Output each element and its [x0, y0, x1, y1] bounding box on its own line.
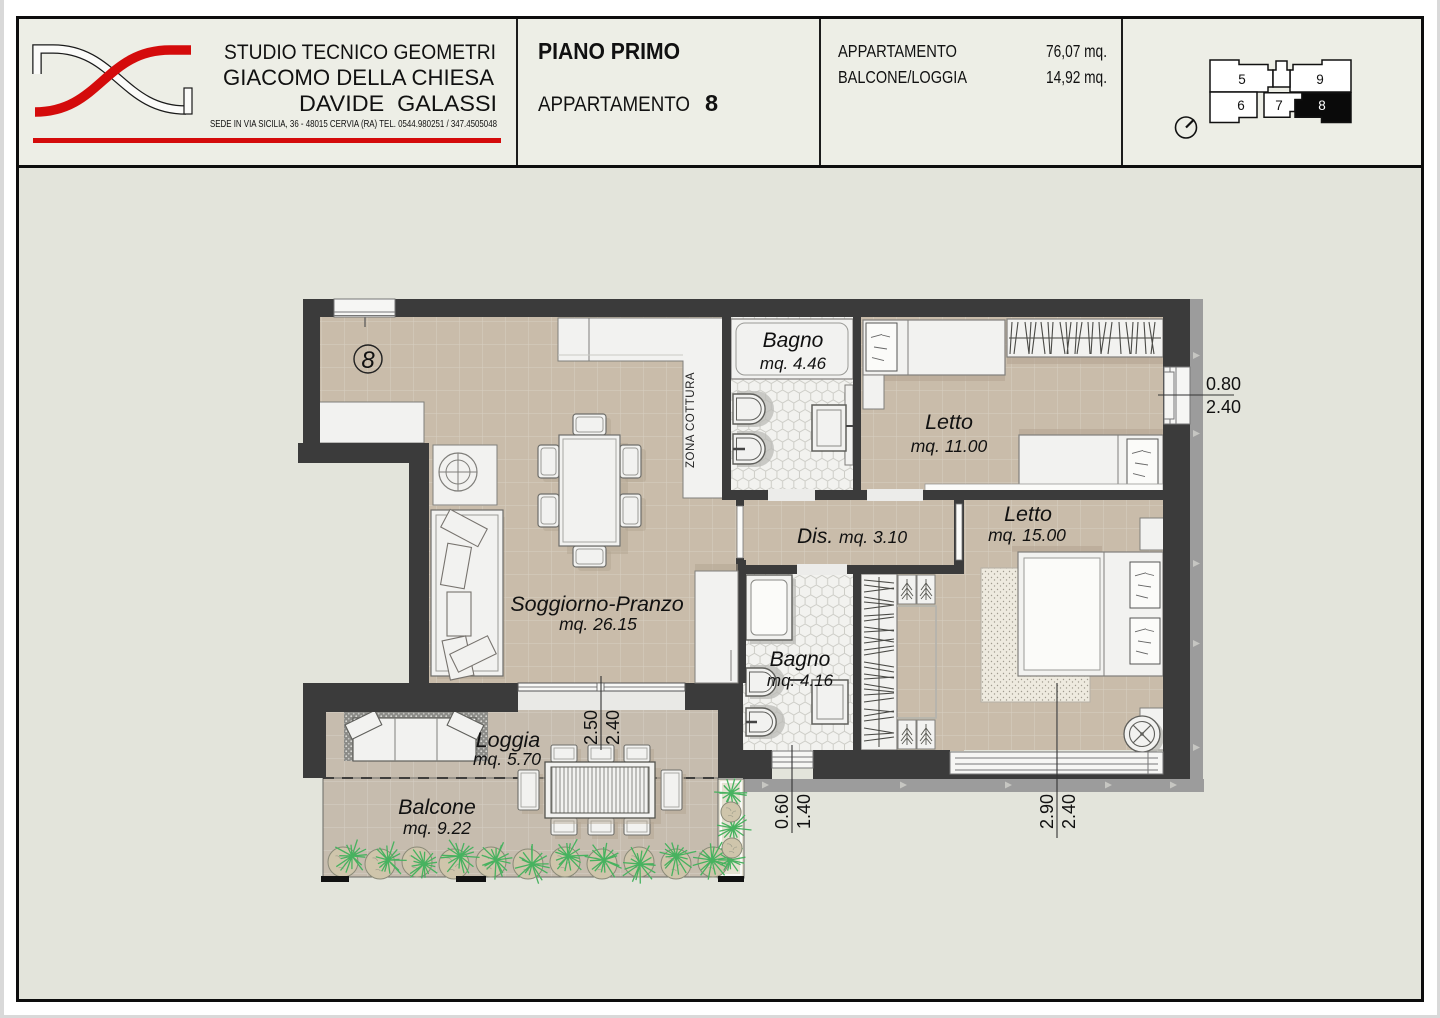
- svg-text:mq. 4.46: mq. 4.46: [760, 354, 827, 373]
- svg-text:mq. 15.00: mq. 15.00: [988, 525, 1066, 545]
- svg-text:Dis. mq. 3.10: Dis. mq. 3.10: [797, 525, 907, 548]
- svg-text:Bagno: Bagno: [770, 648, 831, 671]
- svg-text:8: 8: [705, 90, 718, 116]
- svg-text:76,07 mq.: 76,07 mq.: [1046, 41, 1107, 61]
- svg-text:APPARTAMENTO: APPARTAMENTO: [838, 41, 957, 61]
- svg-text:BALCONE/LOGGIA: BALCONE/LOGGIA: [838, 67, 967, 87]
- svg-text:8: 8: [1318, 98, 1326, 113]
- svg-text:1.40: 1.40: [794, 794, 814, 829]
- svg-text:2.40: 2.40: [1206, 397, 1241, 417]
- svg-text:mq. 5.70: mq. 5.70: [473, 749, 541, 769]
- svg-text:5: 5: [1238, 72, 1246, 87]
- svg-text:7: 7: [1275, 98, 1283, 113]
- svg-text:Soggiorno-Pranzo: Soggiorno-Pranzo: [510, 592, 683, 616]
- svg-text:Letto: Letto: [1004, 502, 1052, 526]
- svg-text:0.60: 0.60: [772, 794, 792, 829]
- svg-text:2.40: 2.40: [603, 710, 623, 745]
- svg-text:6: 6: [1237, 98, 1245, 113]
- svg-text:STUDIO TECNICO GEOMETRI: STUDIO TECNICO GEOMETRI: [224, 41, 496, 64]
- svg-text:ZONA COTTURA: ZONA COTTURA: [685, 372, 697, 468]
- svg-text:2.40: 2.40: [1059, 794, 1079, 829]
- svg-text:14,92 mq.: 14,92 mq.: [1046, 67, 1107, 87]
- svg-text:2.50: 2.50: [581, 710, 601, 745]
- svg-text:Balcone: Balcone: [398, 795, 476, 819]
- svg-text:mq. 26.15: mq. 26.15: [559, 614, 637, 634]
- svg-text:DAVIDE GALASSI: DAVIDE GALASSI: [299, 91, 497, 116]
- svg-text:Bagno: Bagno: [763, 329, 824, 352]
- svg-text:mq. 9.22: mq. 9.22: [403, 818, 471, 838]
- svg-text:GIACOMO DELLA CHIESA: GIACOMO DELLA CHIESA: [223, 65, 494, 90]
- svg-text:9: 9: [1316, 72, 1324, 87]
- svg-text:SEDE IN VIA SICILIA, 36 - 4801: SEDE IN VIA SICILIA, 36 - 48015 CERVIA (…: [210, 119, 497, 130]
- svg-text:8: 8: [361, 347, 375, 374]
- svg-text:0.80: 0.80: [1206, 374, 1241, 394]
- svg-text:mq. 11.00: mq. 11.00: [911, 436, 988, 456]
- svg-text:APPARTAMENTO: APPARTAMENTO: [538, 92, 690, 116]
- svg-text:mq. 4.16: mq. 4.16: [767, 671, 834, 690]
- svg-text:Letto: Letto: [925, 410, 973, 434]
- svg-text:PIANO PRIMO: PIANO PRIMO: [538, 38, 680, 64]
- svg-text:2.90: 2.90: [1037, 794, 1057, 829]
